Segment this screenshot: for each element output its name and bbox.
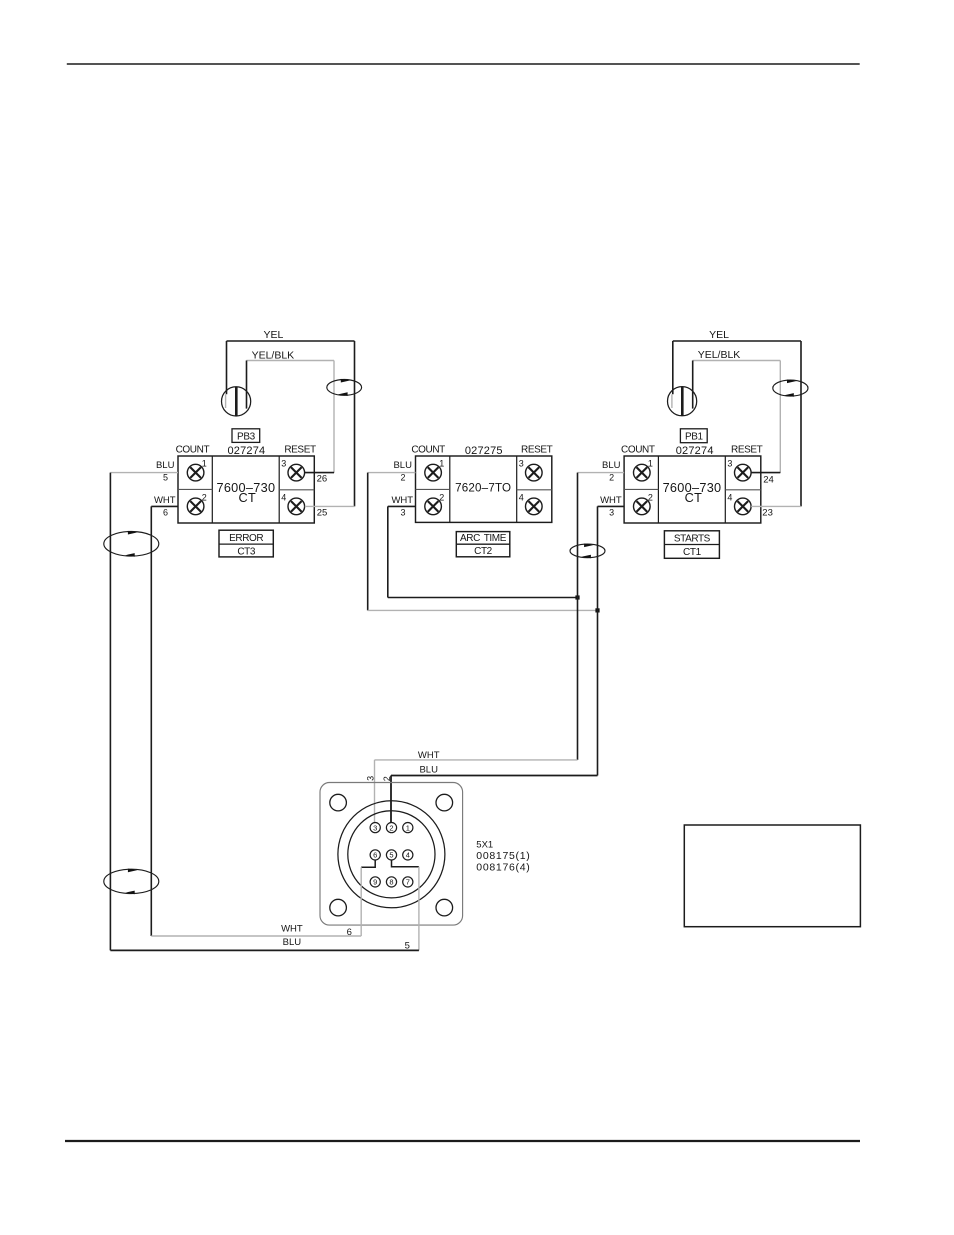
svg-text:4: 4 [281, 492, 286, 502]
svg-text:5: 5 [405, 941, 410, 952]
svg-text:YEL/BLK: YEL/BLK [698, 349, 741, 361]
svg-text:COUNT: COUNT [176, 445, 210, 456]
svg-text:1: 1 [439, 459, 444, 469]
svg-text:7: 7 [406, 878, 410, 887]
svg-text:2: 2 [648, 492, 653, 502]
svg-text:23: 23 [762, 507, 773, 518]
svg-text:3: 3 [373, 823, 377, 832]
svg-text:3: 3 [400, 508, 405, 518]
svg-text:1: 1 [406, 823, 410, 832]
svg-text:2: 2 [382, 776, 392, 781]
svg-text:2: 2 [202, 492, 207, 502]
svg-text:STARTS: STARTS [674, 533, 711, 544]
svg-text:1: 1 [202, 459, 207, 469]
svg-text:ARC TIME: ARC TIME [460, 533, 507, 544]
svg-text:COUNT: COUNT [411, 445, 445, 456]
svg-text:2: 2 [389, 823, 393, 832]
svg-text:027274: 027274 [227, 445, 265, 457]
svg-text:WHT: WHT [600, 495, 622, 506]
svg-text:YEL: YEL [709, 329, 729, 341]
svg-text:CT1: CT1 [683, 547, 702, 558]
svg-text:WHT: WHT [281, 923, 303, 934]
svg-text:3: 3 [609, 508, 614, 518]
svg-text:YEL/BLK: YEL/BLK [252, 349, 295, 361]
svg-text:2: 2 [609, 473, 614, 483]
svg-text:YEL: YEL [263, 329, 283, 341]
svg-text:BLU: BLU [419, 765, 438, 776]
svg-text:WHT: WHT [391, 495, 413, 506]
svg-text:008176(4): 008176(4) [476, 861, 530, 873]
svg-text:6: 6 [163, 508, 168, 518]
svg-text:7620–7TO: 7620–7TO [455, 481, 511, 494]
svg-text:008175(1): 008175(1) [476, 850, 530, 862]
svg-text:6: 6 [373, 851, 377, 860]
svg-text:8: 8 [389, 878, 393, 887]
svg-text:5: 5 [389, 851, 393, 860]
svg-text:BLU: BLU [393, 460, 412, 471]
svg-text:2: 2 [400, 473, 405, 483]
svg-text:25: 25 [317, 507, 328, 518]
svg-text:26: 26 [317, 473, 328, 484]
svg-text:6: 6 [347, 927, 352, 938]
svg-text:5: 5 [163, 473, 168, 483]
svg-text:5X1: 5X1 [476, 839, 493, 850]
svg-text:PB1: PB1 [685, 432, 704, 443]
svg-text:BLU: BLU [156, 460, 175, 471]
svg-text:1: 1 [648, 459, 653, 469]
svg-text:ERROR: ERROR [229, 533, 263, 544]
svg-text:RESET: RESET [521, 445, 553, 456]
svg-text:4: 4 [727, 492, 732, 502]
svg-text:COUNT: COUNT [621, 445, 655, 456]
svg-text:4: 4 [406, 851, 410, 860]
svg-text:CT2: CT2 [474, 546, 493, 557]
svg-text:RESET: RESET [284, 445, 316, 456]
svg-text:RESET: RESET [731, 445, 763, 456]
svg-text:9: 9 [373, 878, 377, 887]
svg-text:BLU: BLU [602, 460, 621, 471]
svg-text:CT: CT [685, 491, 703, 505]
svg-text:027274: 027274 [676, 445, 714, 457]
svg-text:3: 3 [519, 459, 524, 469]
svg-text:3: 3 [366, 776, 376, 781]
svg-text:WHT: WHT [154, 495, 176, 506]
svg-text:2: 2 [439, 492, 444, 502]
svg-text:BLU: BLU [283, 937, 302, 948]
svg-text:3: 3 [727, 459, 732, 469]
svg-text:CT: CT [239, 491, 257, 505]
svg-text:027275: 027275 [465, 445, 503, 457]
svg-text:24: 24 [763, 475, 774, 486]
svg-text:PB3: PB3 [237, 432, 256, 443]
svg-text:CT3: CT3 [237, 546, 256, 557]
svg-text:4: 4 [519, 492, 524, 502]
svg-text:3: 3 [281, 459, 286, 469]
